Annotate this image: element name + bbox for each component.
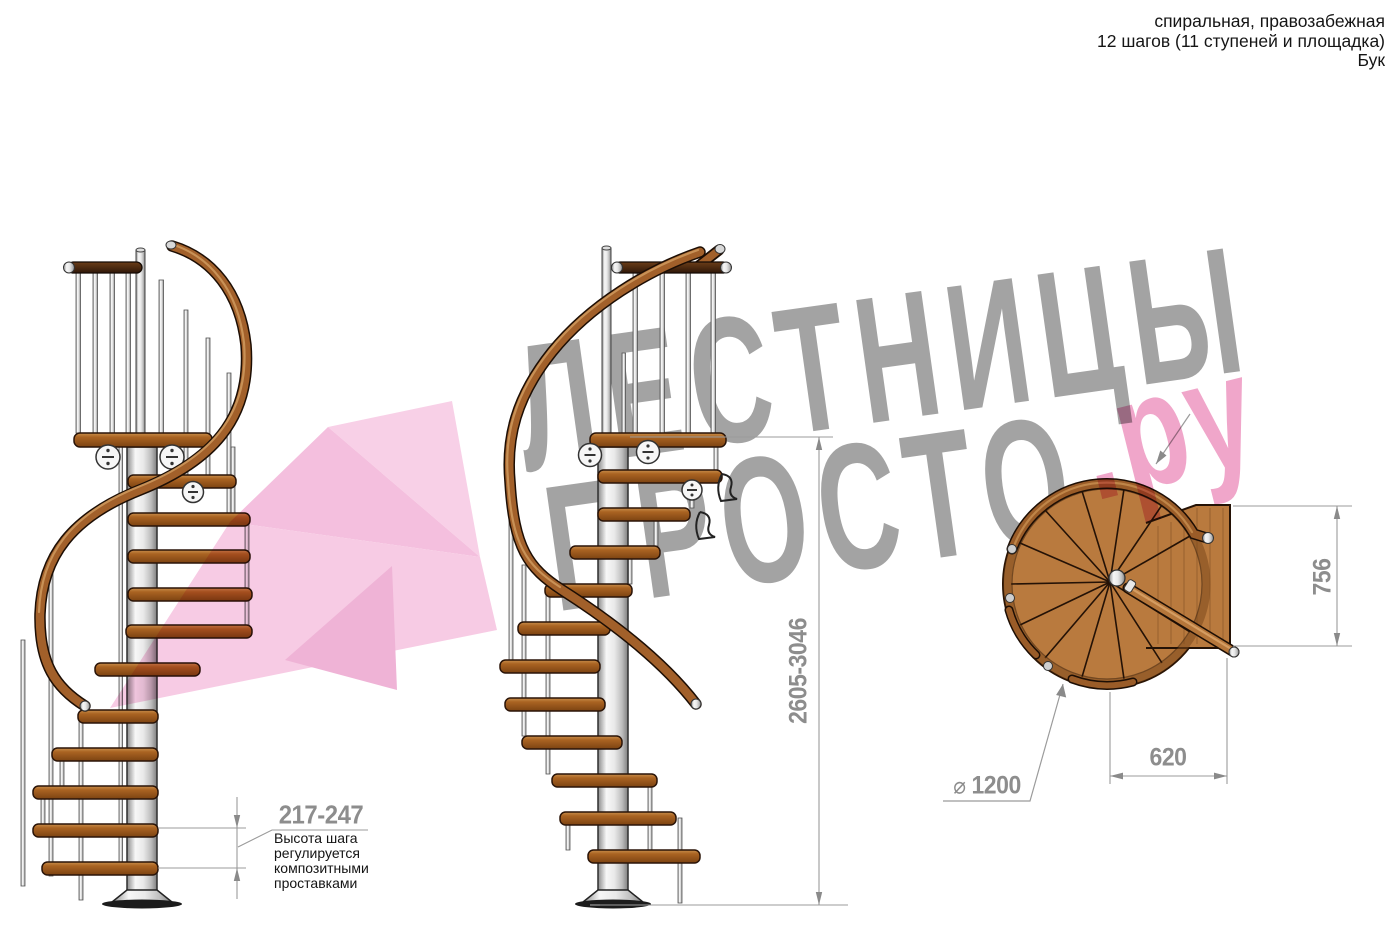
total-height-label: 2605-3046 <box>785 618 814 724</box>
note-line: композитными <box>274 861 369 876</box>
title-block: спиральная, правозабежная 12 шагов (11 с… <box>1097 12 1385 71</box>
drawing-sheet: ЛЕСТНИЦЫ ПРОСТО <box>0 0 1400 950</box>
step-height-label: 217-247 <box>279 800 364 831</box>
landing-width-label: 620 <box>1149 744 1186 773</box>
note-line: Высота шага <box>274 831 369 846</box>
landing-depth-label: 756 <box>1309 558 1338 595</box>
note-line: регулируется <box>274 846 369 861</box>
diameter-value: 1200 <box>971 772 1020 800</box>
diameter-symbol: ⌀ <box>953 773 965 799</box>
note-line: проставками <box>274 876 369 891</box>
stair-type-line: спиральная, правозабежная <box>1097 12 1385 32</box>
steps-count-line: 12 шагов (11 ступеней и площадка) <box>1097 32 1385 52</box>
diameter-label: ⌀ 1200 <box>953 772 1021 801</box>
material-line: Бук <box>1097 51 1385 71</box>
step-height-note: Высота шага регулируется композитными пр… <box>274 831 369 891</box>
watermark-domain-suffix: .ру <box>1062 327 1273 525</box>
